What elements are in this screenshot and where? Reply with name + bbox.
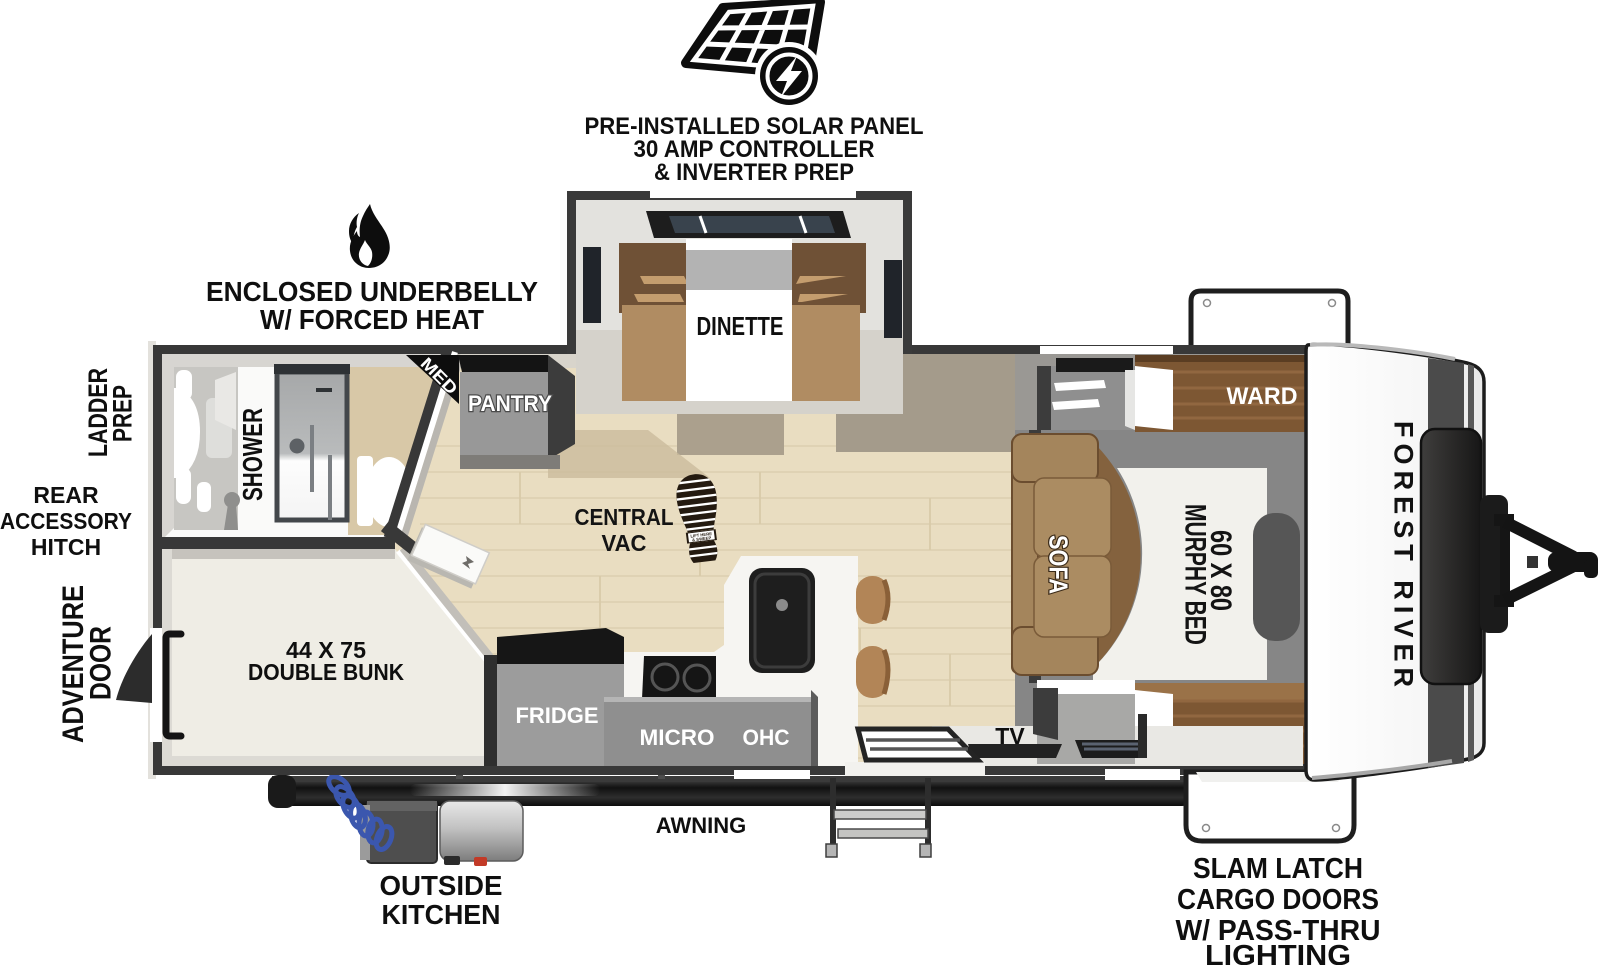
svg-text:MURPHY BED: MURPHY BED <box>1179 504 1212 645</box>
svg-text:OUTSIDE: OUTSIDE <box>380 870 503 901</box>
svg-text:DINETTE: DINETTE <box>697 311 784 341</box>
svg-text:& INVERTER PREP: & INVERTER PREP <box>654 159 854 186</box>
svg-text:VAC: VAC <box>602 530 647 556</box>
svg-text:HITCH: HITCH <box>31 534 101 560</box>
svg-text:FOREST RIVER: FOREST RIVER <box>1389 421 1419 687</box>
svg-text:SOFA: SOFA <box>1044 535 1074 594</box>
svg-text:ACCESSORY: ACCESSORY <box>0 508 132 534</box>
svg-text:FRIDGE: FRIDGE <box>516 703 599 728</box>
svg-text:PANTRY: PANTRY <box>468 391 552 416</box>
svg-text:KITCHEN: KITCHEN <box>382 899 501 930</box>
svg-text:CARGO DOORS: CARGO DOORS <box>1177 884 1379 916</box>
svg-text:DOUBLE BUNK: DOUBLE BUNK <box>248 659 404 685</box>
svg-text:ENCLOSED UNDERBELLY: ENCLOSED UNDERBELLY <box>206 276 538 307</box>
svg-text:W/ FORCED HEAT: W/ FORCED HEAT <box>260 304 484 335</box>
svg-text:TV: TV <box>995 723 1025 749</box>
svg-text:LIGHTING: LIGHTING <box>1205 940 1351 965</box>
svg-text:PREP: PREP <box>108 385 138 442</box>
svg-text:AWNING: AWNING <box>656 813 746 838</box>
svg-text:CENTRAL: CENTRAL <box>575 504 674 530</box>
svg-text:DOOR: DOOR <box>85 626 118 700</box>
svg-text:OHC: OHC <box>743 725 790 750</box>
svg-text:MICRO: MICRO <box>640 725 715 750</box>
svg-text:WARD: WARD <box>1227 383 1298 410</box>
svg-text:REAR: REAR <box>33 482 99 508</box>
svg-text:SLAM LATCH: SLAM LATCH <box>1193 853 1363 885</box>
svg-text:SHOWER: SHOWER <box>237 408 268 501</box>
